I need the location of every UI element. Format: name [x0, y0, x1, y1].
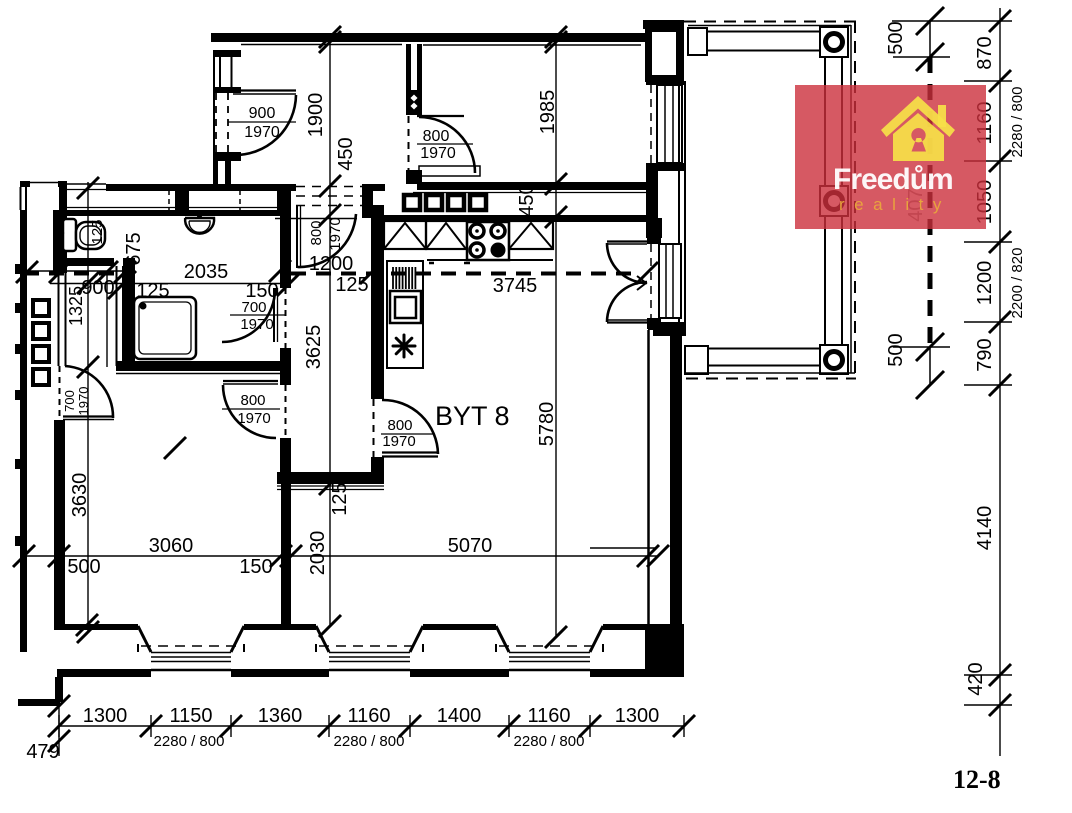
svg-text:1985: 1985: [537, 90, 559, 135]
svg-text:800: 800: [240, 392, 265, 409]
svg-text:1970: 1970: [240, 316, 273, 333]
svg-text:reality: reality: [839, 195, 951, 214]
svg-text:500: 500: [67, 556, 100, 578]
svg-text:2030: 2030: [307, 531, 329, 576]
svg-text:1150: 1150: [169, 705, 212, 727]
svg-text:150: 150: [239, 556, 272, 578]
svg-text:1970: 1970: [382, 433, 415, 450]
svg-text:2280 / 800: 2280 / 800: [514, 733, 585, 750]
svg-text:900: 900: [249, 105, 276, 122]
svg-text:2280 / 800: 2280 / 800: [334, 733, 405, 750]
svg-text:420: 420: [965, 662, 987, 695]
svg-text:450: 450: [516, 183, 538, 216]
svg-text:1970: 1970: [237, 410, 270, 427]
svg-text:479: 479: [26, 741, 59, 763]
svg-text:1970: 1970: [420, 145, 456, 162]
svg-text:870: 870: [974, 36, 996, 69]
svg-text:3625: 3625: [303, 325, 325, 370]
svg-text:2280 / 800: 2280 / 800: [1009, 87, 1026, 158]
svg-text:Freedům: Freedům: [833, 163, 953, 196]
svg-text:BYT 8: BYT 8: [435, 401, 510, 431]
svg-text:2200 / 820: 2200 / 820: [1009, 248, 1026, 319]
svg-text:3630: 3630: [69, 473, 91, 518]
svg-text:1400: 1400: [437, 705, 482, 727]
svg-text:1970: 1970: [244, 124, 280, 141]
svg-text:12-8: 12-8: [953, 765, 1001, 794]
svg-text:500: 500: [885, 21, 907, 54]
svg-text:5070: 5070: [448, 535, 493, 557]
svg-text:1970: 1970: [76, 387, 91, 416]
svg-text:1160: 1160: [527, 705, 570, 727]
svg-text:800: 800: [387, 417, 412, 434]
svg-text:1200: 1200: [309, 253, 354, 275]
svg-text:450: 450: [335, 137, 357, 170]
svg-text:1360: 1360: [258, 705, 303, 727]
svg-text:4140: 4140: [974, 506, 996, 551]
svg-text:500: 500: [885, 333, 907, 366]
svg-text:2280 / 800: 2280 / 800: [154, 733, 225, 750]
svg-text:125: 125: [329, 482, 351, 515]
svg-text:125: 125: [335, 274, 368, 296]
svg-text:800: 800: [423, 128, 450, 145]
svg-text:1160: 1160: [347, 705, 390, 727]
svg-text:150: 150: [245, 280, 278, 302]
svg-text:700: 700: [62, 390, 77, 412]
svg-text:1300: 1300: [83, 705, 128, 727]
svg-text:790: 790: [974, 338, 996, 371]
svg-text:3745: 3745: [493, 275, 538, 297]
svg-text:2035: 2035: [184, 261, 229, 283]
svg-text:1200: 1200: [974, 261, 996, 306]
svg-text:1900: 1900: [305, 93, 327, 138]
svg-text:1300: 1300: [615, 705, 660, 727]
svg-text:5780: 5780: [536, 402, 558, 447]
svg-text:125: 125: [136, 280, 169, 302]
svg-text:3060: 3060: [149, 535, 194, 557]
svg-text:125: 125: [89, 219, 106, 244]
